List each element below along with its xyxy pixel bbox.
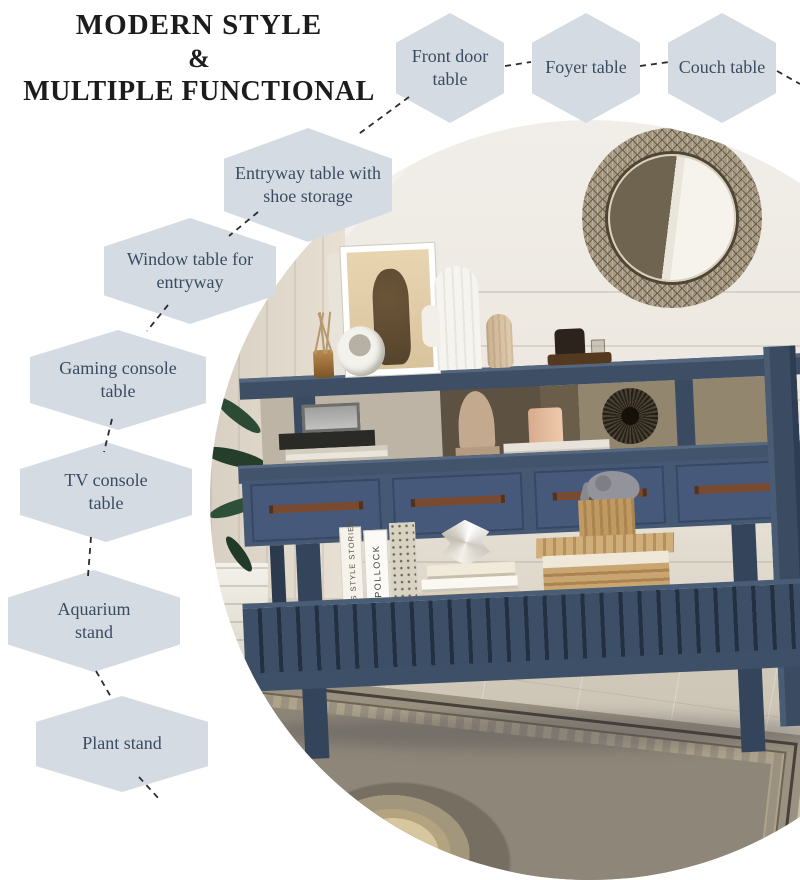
hexagon-label: Couch table [679,56,765,79]
hexagon-aquarium-stand: Aquarium stand [8,570,180,672]
connector-tv-aquarium [88,537,91,576]
small-wicker-box [578,498,636,539]
hexagon-couch-table: Couch table [668,13,776,123]
page: { "title": { "line1": "MODERN STYLE", "a… [0,0,800,800]
dark-teapot [554,328,585,355]
connector-foyer-couch [640,62,669,66]
table-side-panel [763,346,800,727]
reed-diffuser [313,350,334,379]
hexagon-foyer-table: Foyer table [532,13,640,123]
drawer-handle [269,501,363,513]
connector-frontdoor-foyer [505,62,531,66]
hexagon-label: Window table for entryway [125,248,255,295]
perfume-display [301,402,360,433]
hexagon-label: Aquarium stand [48,598,140,645]
hexagon-front-door-table: Front door table [396,13,504,123]
hexagon-label: Gaming console table [52,357,184,404]
book-spine-text: POLLOCK [371,545,383,598]
page-title: MODERN STYLE & MULTIPLE FUNCTIONAL [0,8,398,109]
title-line-2: MULTIPLE FUNCTIONAL [0,75,398,109]
ring-sculpture-hole [348,334,371,357]
hexagon-plant-stand: Plant stand [36,696,208,792]
hexagon-gaming-console-table: Gaming console table [30,330,206,430]
connector-couch-edge [777,71,800,84]
table-frame-divider [674,375,695,448]
white-cactus-sculpture [433,265,482,371]
hexagon-label: Plant stand [82,732,162,755]
hexagon-label: TV console table [56,469,156,516]
connector-aquarium-plant [96,671,111,697]
beige-cactus-sculpture [485,313,513,368]
hexagon-label: Entryway table with shoe storage [232,162,384,209]
title-ampersand: & [0,43,398,76]
hexagon-tv-console-table: TV console table [20,442,192,542]
cactus-arm [421,305,441,348]
drawer-handle [411,495,505,507]
hexagon-label: Front door table [405,45,495,92]
hexagon-label: Foyer table [545,56,626,79]
title-line-1: MODERN STYLE [0,8,398,43]
